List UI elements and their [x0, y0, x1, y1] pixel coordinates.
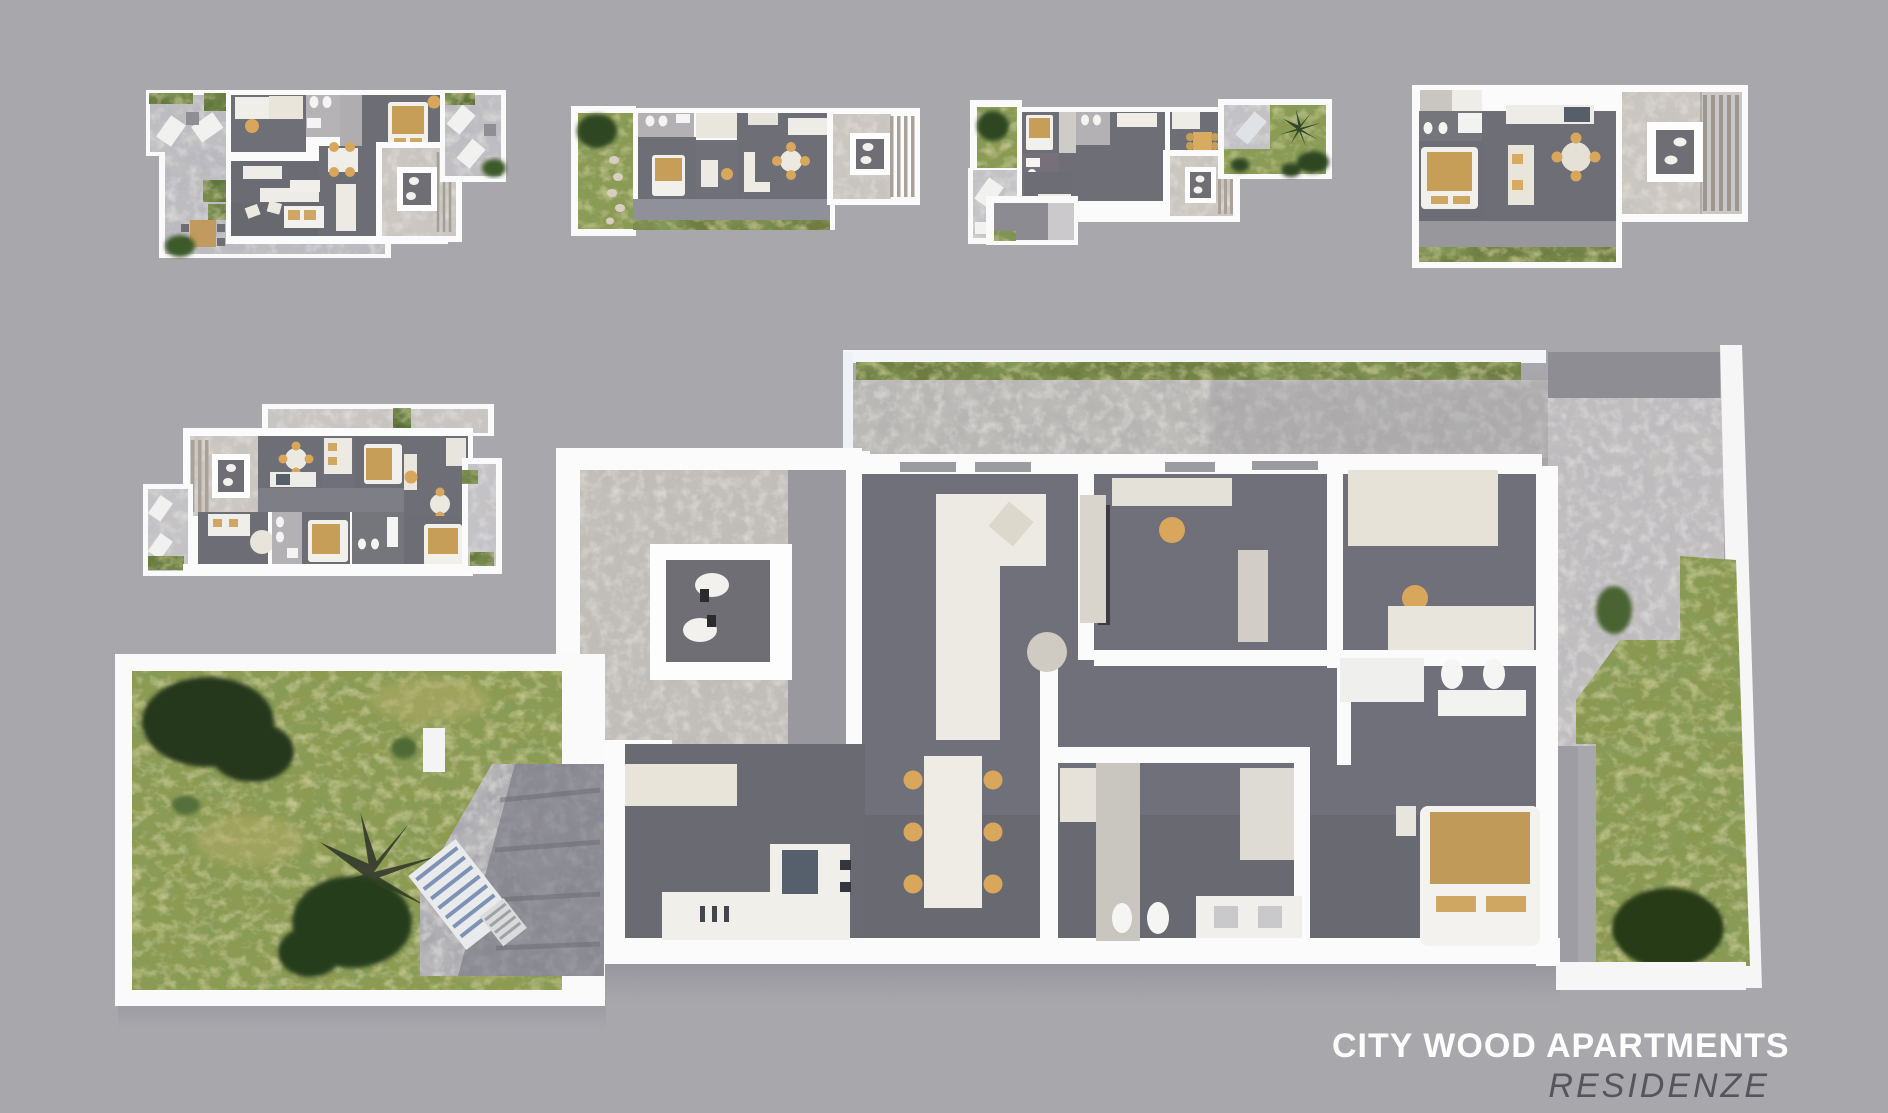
svg-text:RESIDENZE: RESIDENZE: [1548, 1067, 1770, 1105]
svg-text:CITY WOOD APARTMENTS: CITY WOOD APARTMENTS: [1332, 1027, 1790, 1065]
